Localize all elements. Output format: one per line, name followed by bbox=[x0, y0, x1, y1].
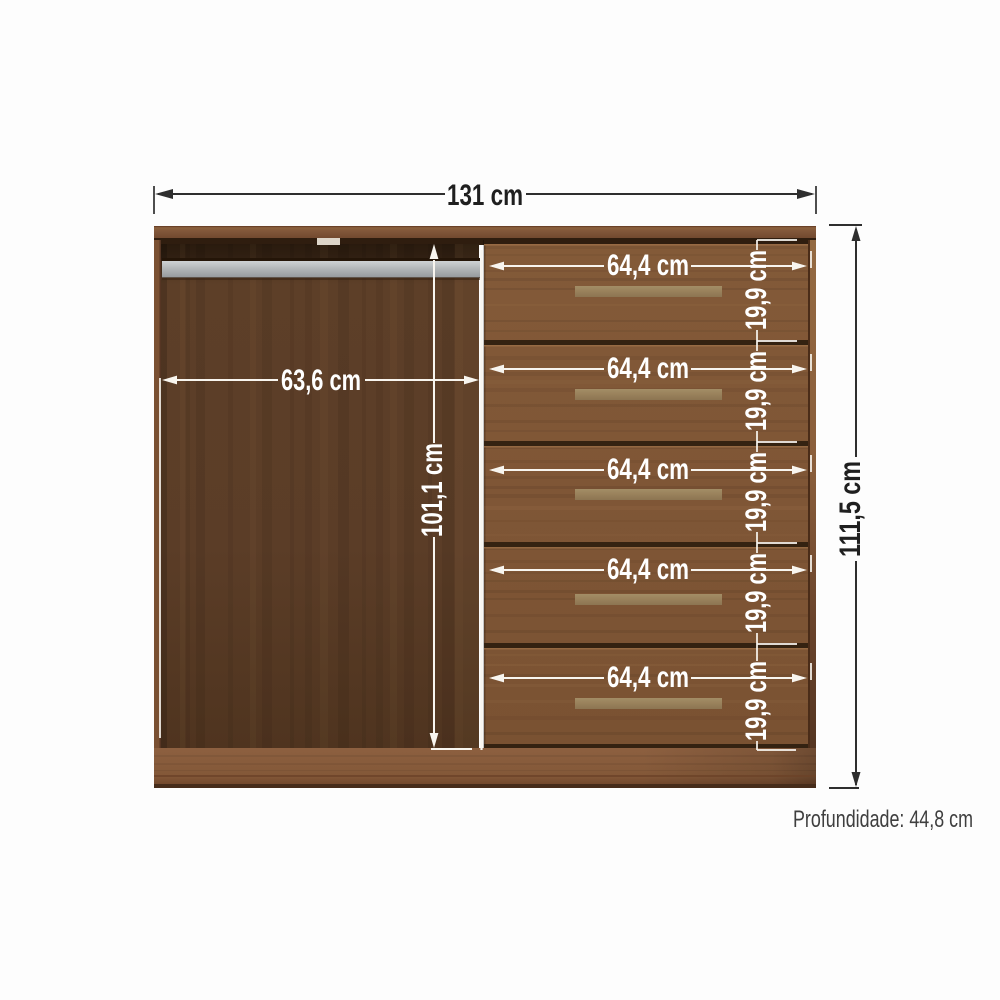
svg-text:64,4 cm: 64,4 cm bbox=[607, 661, 689, 694]
svg-text:101,1 cm: 101,1 cm bbox=[416, 443, 449, 537]
svg-text:19,9 cm: 19,9 cm bbox=[740, 452, 773, 532]
svg-text:63,6 cm: 63,6 cm bbox=[281, 364, 361, 397]
svg-text:64,4 cm: 64,4 cm bbox=[607, 453, 689, 486]
svg-text:19,9 cm: 19,9 cm bbox=[740, 351, 773, 431]
svg-text:19,9 cm: 19,9 cm bbox=[740, 553, 773, 633]
svg-text:64,4 cm: 64,4 cm bbox=[607, 249, 689, 282]
svg-text:111,5 cm: 111,5 cm bbox=[834, 461, 867, 557]
svg-text:64,4 cm: 64,4 cm bbox=[607, 553, 689, 586]
svg-text:Profundidade: 44,8 cm: Profundidade: 44,8 cm bbox=[793, 806, 973, 833]
svg-text:64,4 cm: 64,4 cm bbox=[607, 352, 689, 385]
svg-text:19,9 cm: 19,9 cm bbox=[740, 250, 773, 330]
svg-text:131 cm: 131 cm bbox=[447, 179, 523, 212]
svg-text:19,9 cm: 19,9 cm bbox=[740, 661, 773, 741]
